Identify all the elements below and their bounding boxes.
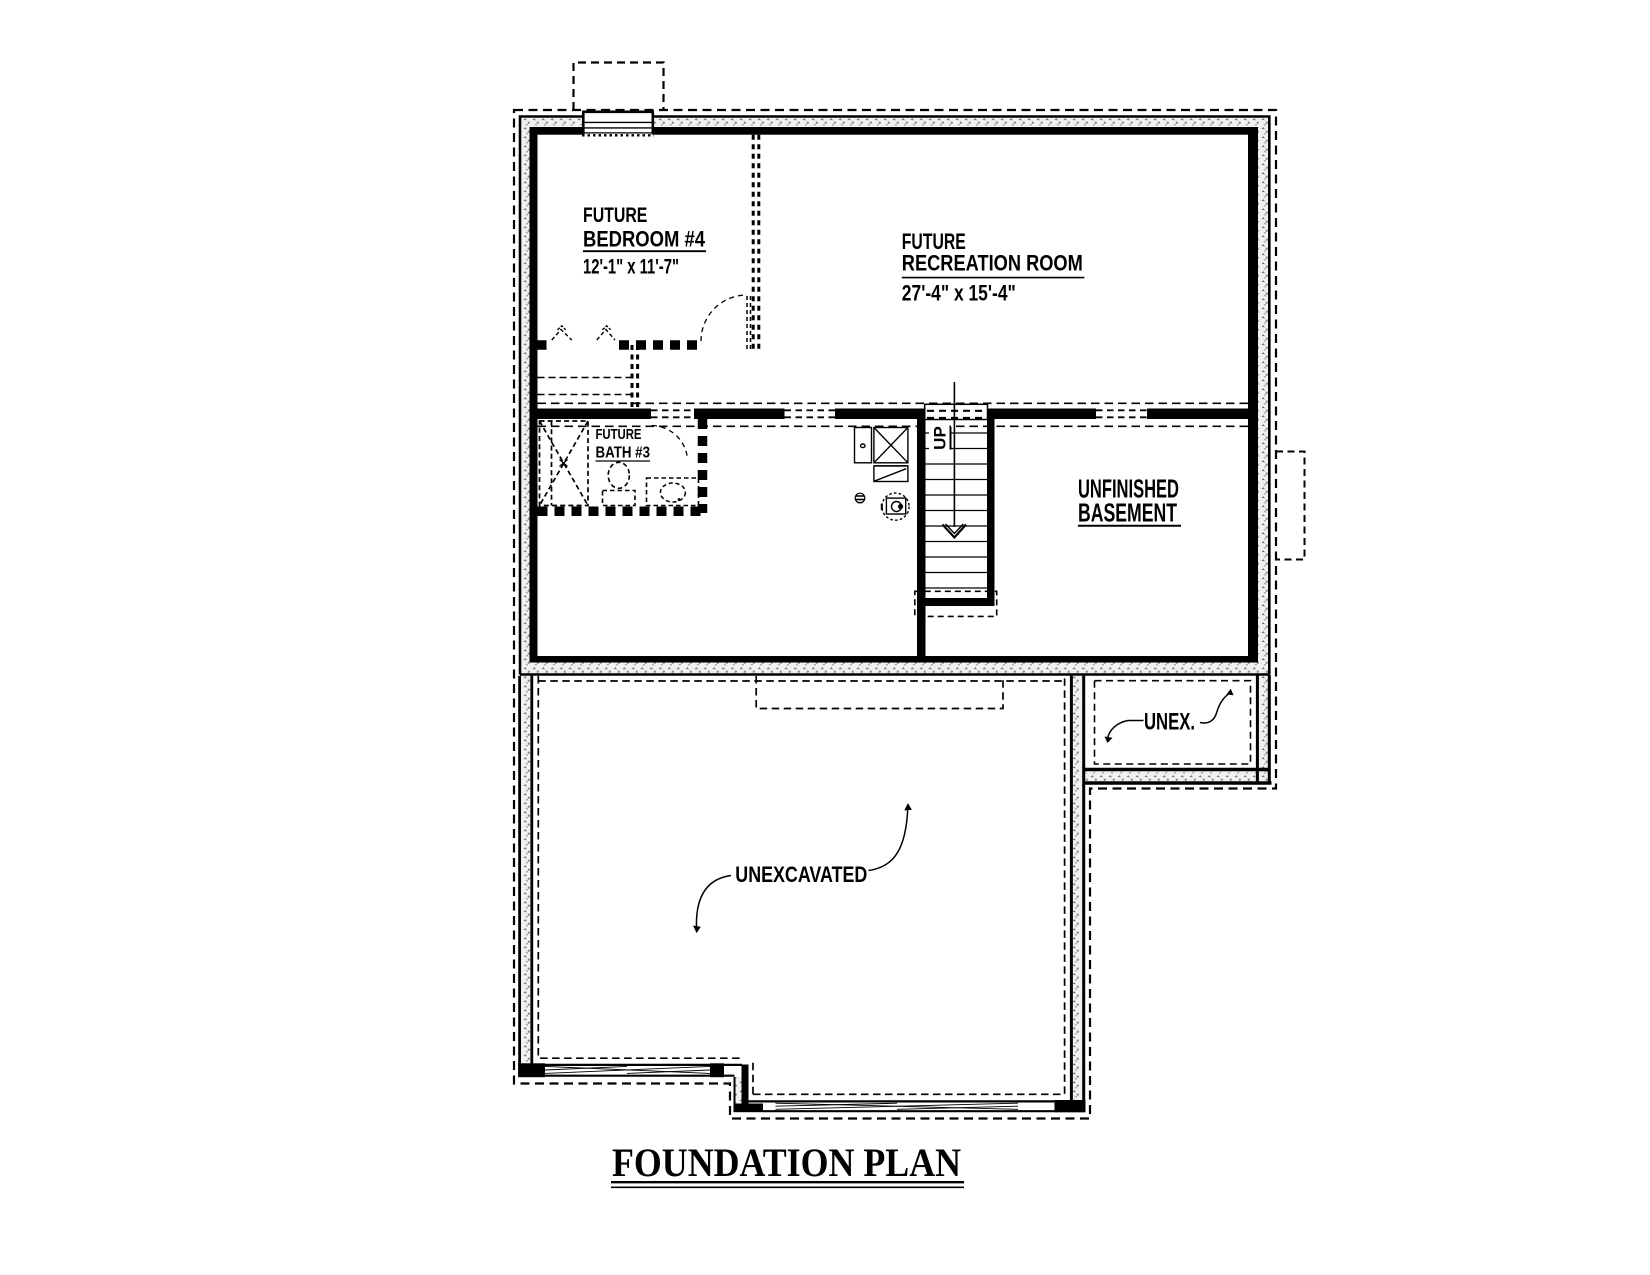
svg-text:12'-1" x 11'-7": 12'-1" x 11'-7": [583, 256, 679, 279]
svg-text:UNEX.: UNEX.: [1144, 709, 1195, 736]
svg-text:BASEMENT: BASEMENT: [1078, 497, 1177, 527]
svg-text:BATH #3: BATH #3: [596, 445, 651, 462]
svg-text:FOUNDATION PLAN: FOUNDATION PLAN: [612, 1140, 961, 1185]
svg-text:BEDROOM #4: BEDROOM #4: [583, 226, 705, 251]
svg-text:FUTURE: FUTURE: [596, 427, 642, 443]
svg-text:27'-4" x 15'-4": 27'-4" x 15'-4": [902, 281, 1016, 306]
svg-text:UP: UP: [930, 426, 949, 450]
svg-text:RECREATION ROOM: RECREATION ROOM: [902, 251, 1083, 276]
svg-text:UNEXCAVATED: UNEXCAVATED: [735, 862, 867, 887]
svg-text:FUTURE: FUTURE: [583, 204, 647, 227]
